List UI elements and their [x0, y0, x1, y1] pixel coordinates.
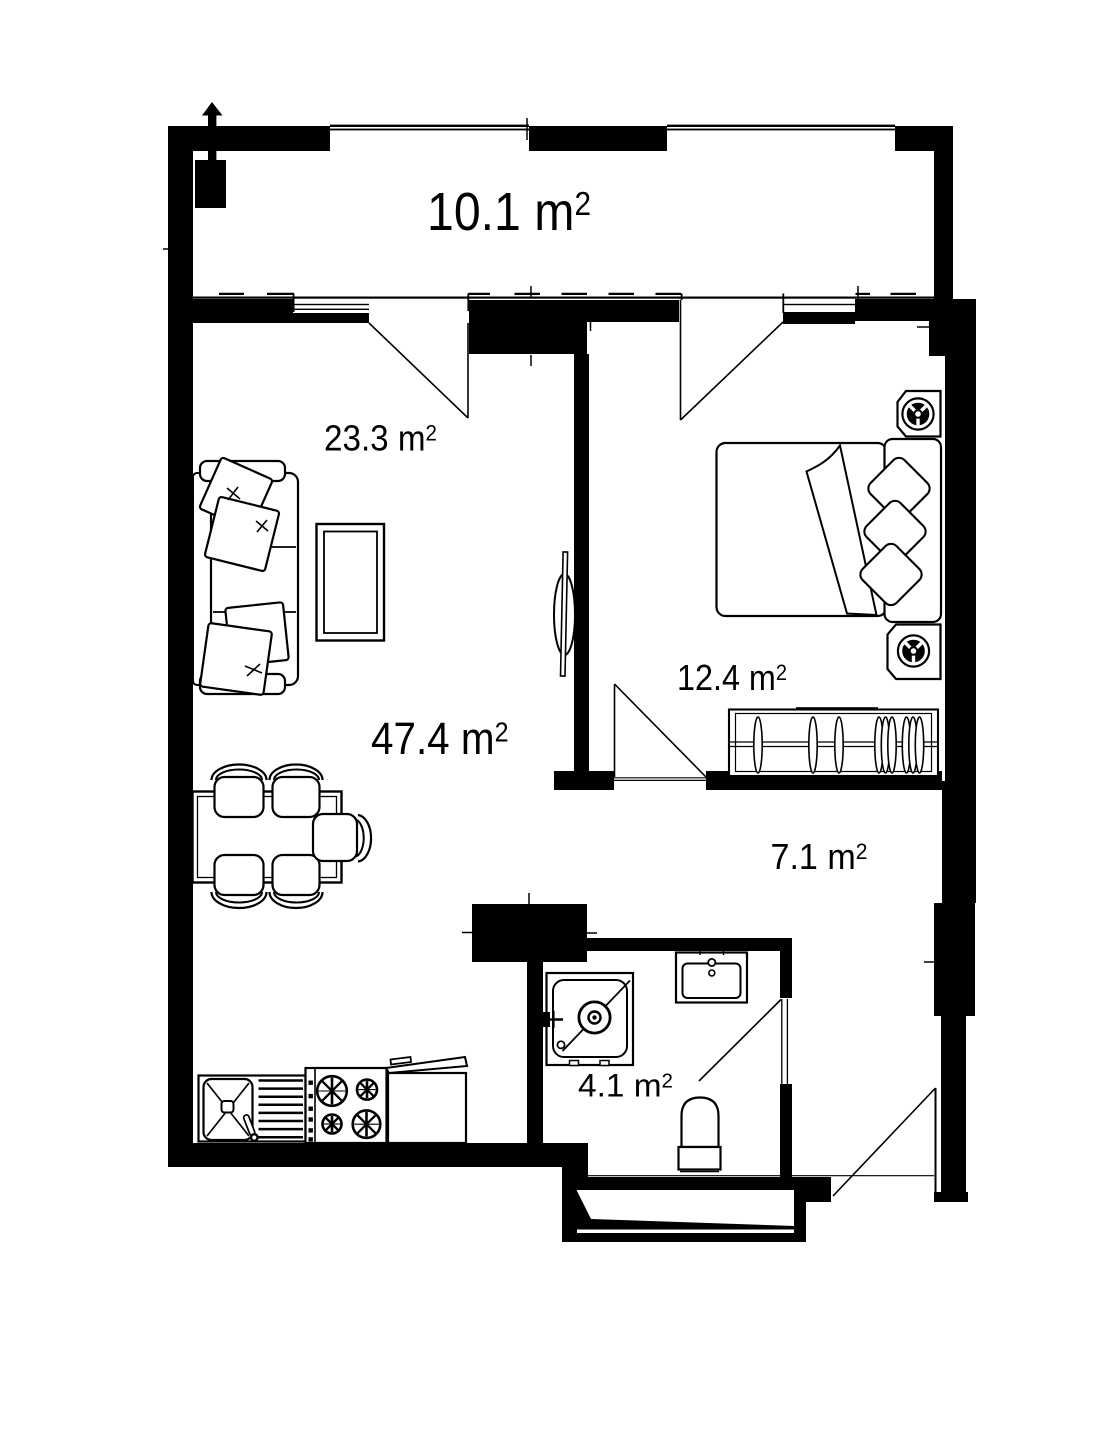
svg-text:10.1 m2: 10.1 m2: [427, 183, 591, 242]
svg-text:4.1 m2: 4.1 m2: [578, 1068, 673, 1104]
svg-text:47.4 m2: 47.4 m2: [371, 713, 509, 764]
svg-text:7.1 m2: 7.1 m2: [771, 836, 868, 877]
svg-text:23.3 m2: 23.3 m2: [324, 418, 437, 459]
svg-text:12.4 m2: 12.4 m2: [677, 657, 787, 698]
